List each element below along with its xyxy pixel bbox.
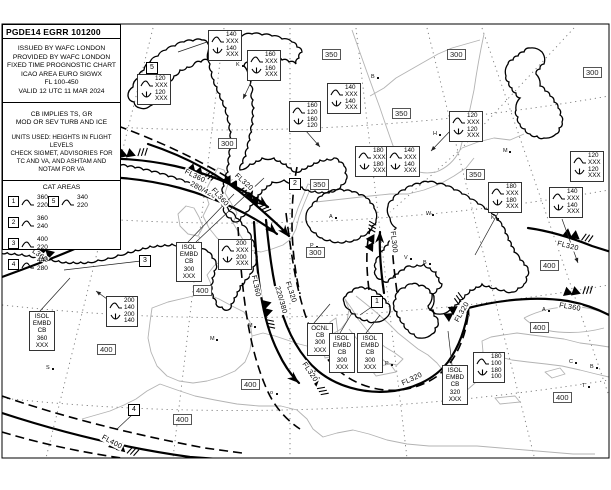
cb-cloud-area: [306, 189, 377, 243]
cat-base-level: 220: [37, 202, 48, 210]
wind-pennant: [562, 285, 593, 296]
cb-cloud-area: [393, 283, 438, 338]
legend-panel: PGDE14 EGRR 101200 ISSUED BY WAFC LONDON…: [2, 24, 121, 250]
coastline: [148, 293, 252, 383]
info-line: FIXED TIME PROGNOSTIC CHART: [5, 62, 118, 71]
unit-line: CHECK SIGMET, ADVISORIES FOR: [4, 150, 119, 158]
cat-top-level: 340: [77, 194, 88, 202]
chart-title: PGDE14 EGRR 101200: [3, 25, 120, 39]
leader-line: [475, 213, 498, 255]
coastline: [370, 40, 480, 96]
cat-area-id: 4: [8, 259, 19, 270]
coastline: [399, 34, 484, 173]
graticule-line: [2, 380, 609, 410]
cat-boundary-dashed: [392, 234, 397, 292]
turbulence-icon: [21, 197, 35, 207]
cat-base-level: 220: [77, 202, 88, 210]
wind-pennant: [364, 221, 377, 252]
turbulence-icon: [61, 197, 75, 207]
cb-note-block: CB IMPLIES TS, GRMOD OR SEV TURB AND ICE: [3, 103, 120, 128]
coastline: [205, 239, 291, 293]
coastline: [495, 396, 520, 404]
cat-top-level: 400: [37, 236, 48, 244]
leader-line: [178, 42, 207, 52]
cat-top-level: 440: [37, 257, 48, 265]
unit-line: UNITS USED: HEIGHTS IN FLIGHT LEVELS: [4, 134, 119, 150]
coastline: [462, 134, 524, 148]
cat-area-levels: 400220: [37, 236, 48, 251]
cb-cloud-area: [374, 181, 528, 314]
coastline: [352, 30, 399, 162]
unit-line: TC AND VA, AND ASHTAM AND: [4, 158, 119, 166]
info-line: VALID 12 UTC 11 MAR 2024: [5, 88, 118, 97]
leader-line: [116, 414, 133, 430]
leader-arrowhead: [574, 258, 579, 264]
cat-area-id: 3: [8, 238, 19, 249]
info-line: FL 100-450: [5, 79, 118, 88]
info-line: ISSUED BY WAFC LONDON: [5, 45, 118, 54]
graticule-line: [2, 285, 609, 318]
jet-stream-line: [468, 299, 611, 316]
info-line: ICAO AREA EURO SIGWX: [5, 71, 118, 80]
coastline: [524, 318, 604, 333]
coastline: [160, 384, 595, 454]
cat-area-levels: 360240: [37, 215, 48, 230]
coastline: [545, 368, 565, 378]
cat-area-row: 5340220: [48, 194, 88, 209]
cat-area-levels: 360220: [37, 194, 48, 209]
graticule-line: [482, 28, 609, 396]
jet-stream-line: [2, 413, 218, 459]
leader-line: [188, 194, 234, 242]
turbulence-icon: [21, 218, 35, 228]
leader-arrowhead: [241, 94, 247, 100]
cat-area-id: 1: [8, 196, 19, 207]
cb-cloud-area: [505, 48, 562, 139]
jet-stream-line: [254, 222, 299, 383]
info-line: PROVIDED BY WAFC LONDON: [5, 54, 118, 63]
wind-pennant: [117, 147, 148, 158]
cat-areas-title: CAT AREAS: [3, 181, 120, 191]
cat-base-level: 280: [37, 265, 48, 273]
coastline: [252, 333, 311, 347]
coastline: [82, 384, 160, 419]
cb-cloud-area: [128, 39, 214, 109]
cat-area-id: 5: [48, 196, 59, 207]
leader-line: [314, 304, 330, 323]
wind-pennant: [441, 292, 465, 322]
graticule-line: [173, 28, 224, 458]
coastline: [482, 333, 609, 373]
cb-cloud-area: [207, 33, 347, 222]
jet-stream-line: [148, 144, 289, 236]
issuer-info-block: ISSUED BY WAFC LONDONPROVIDED BY WAFC LO…: [3, 39, 120, 103]
leader-arrowhead: [95, 289, 101, 295]
cat-base-level: 220: [37, 244, 48, 252]
cat-area-levels: 440280: [37, 257, 48, 272]
cat-area-levels: 340220: [77, 194, 88, 209]
cat-area-id: 2: [8, 217, 19, 228]
cat-top-level: 360: [37, 215, 48, 223]
sigwx-chart: 140XXX140XXX160XXX160XXX160120160120140X…: [0, 0, 611, 490]
turbulence-icon: [21, 239, 35, 249]
cat-areas-legend: CAT AREAS 136022023602403400220444028053…: [3, 181, 120, 273]
cat-base-level: 240: [37, 223, 48, 231]
turbulence-icon: [21, 260, 35, 270]
cat-top-level: 360: [37, 194, 48, 202]
coastline: [482, 352, 609, 377]
cat-boundary-dashed: [118, 126, 232, 180]
cat-area-row: 2360240: [8, 215, 48, 230]
note-line: CB IMPLIES TS, GR: [5, 111, 118, 119]
cat-area-row: 4440280: [8, 257, 48, 272]
graticule-line: [390, 28, 574, 212]
unit-line: NOTAM FOR VA: [4, 166, 119, 174]
jet-arrowhead: [287, 372, 302, 387]
cat-area-row: 1360220: [8, 194, 48, 209]
cat-area-row: 3400220: [8, 236, 48, 251]
coastline: [178, 206, 203, 236]
leader-line: [40, 278, 70, 311]
leader-line: [366, 315, 380, 333]
graticule-line: [356, 28, 407, 458]
graticule-line: [427, 28, 534, 456]
note-line: MOD OR SEV TURB AND ICE: [5, 119, 118, 127]
coastline: [370, 364, 396, 376]
units-note-block: UNITS USED: HEIGHTS IN FLIGHT LEVELSCHEC…: [3, 127, 120, 181]
